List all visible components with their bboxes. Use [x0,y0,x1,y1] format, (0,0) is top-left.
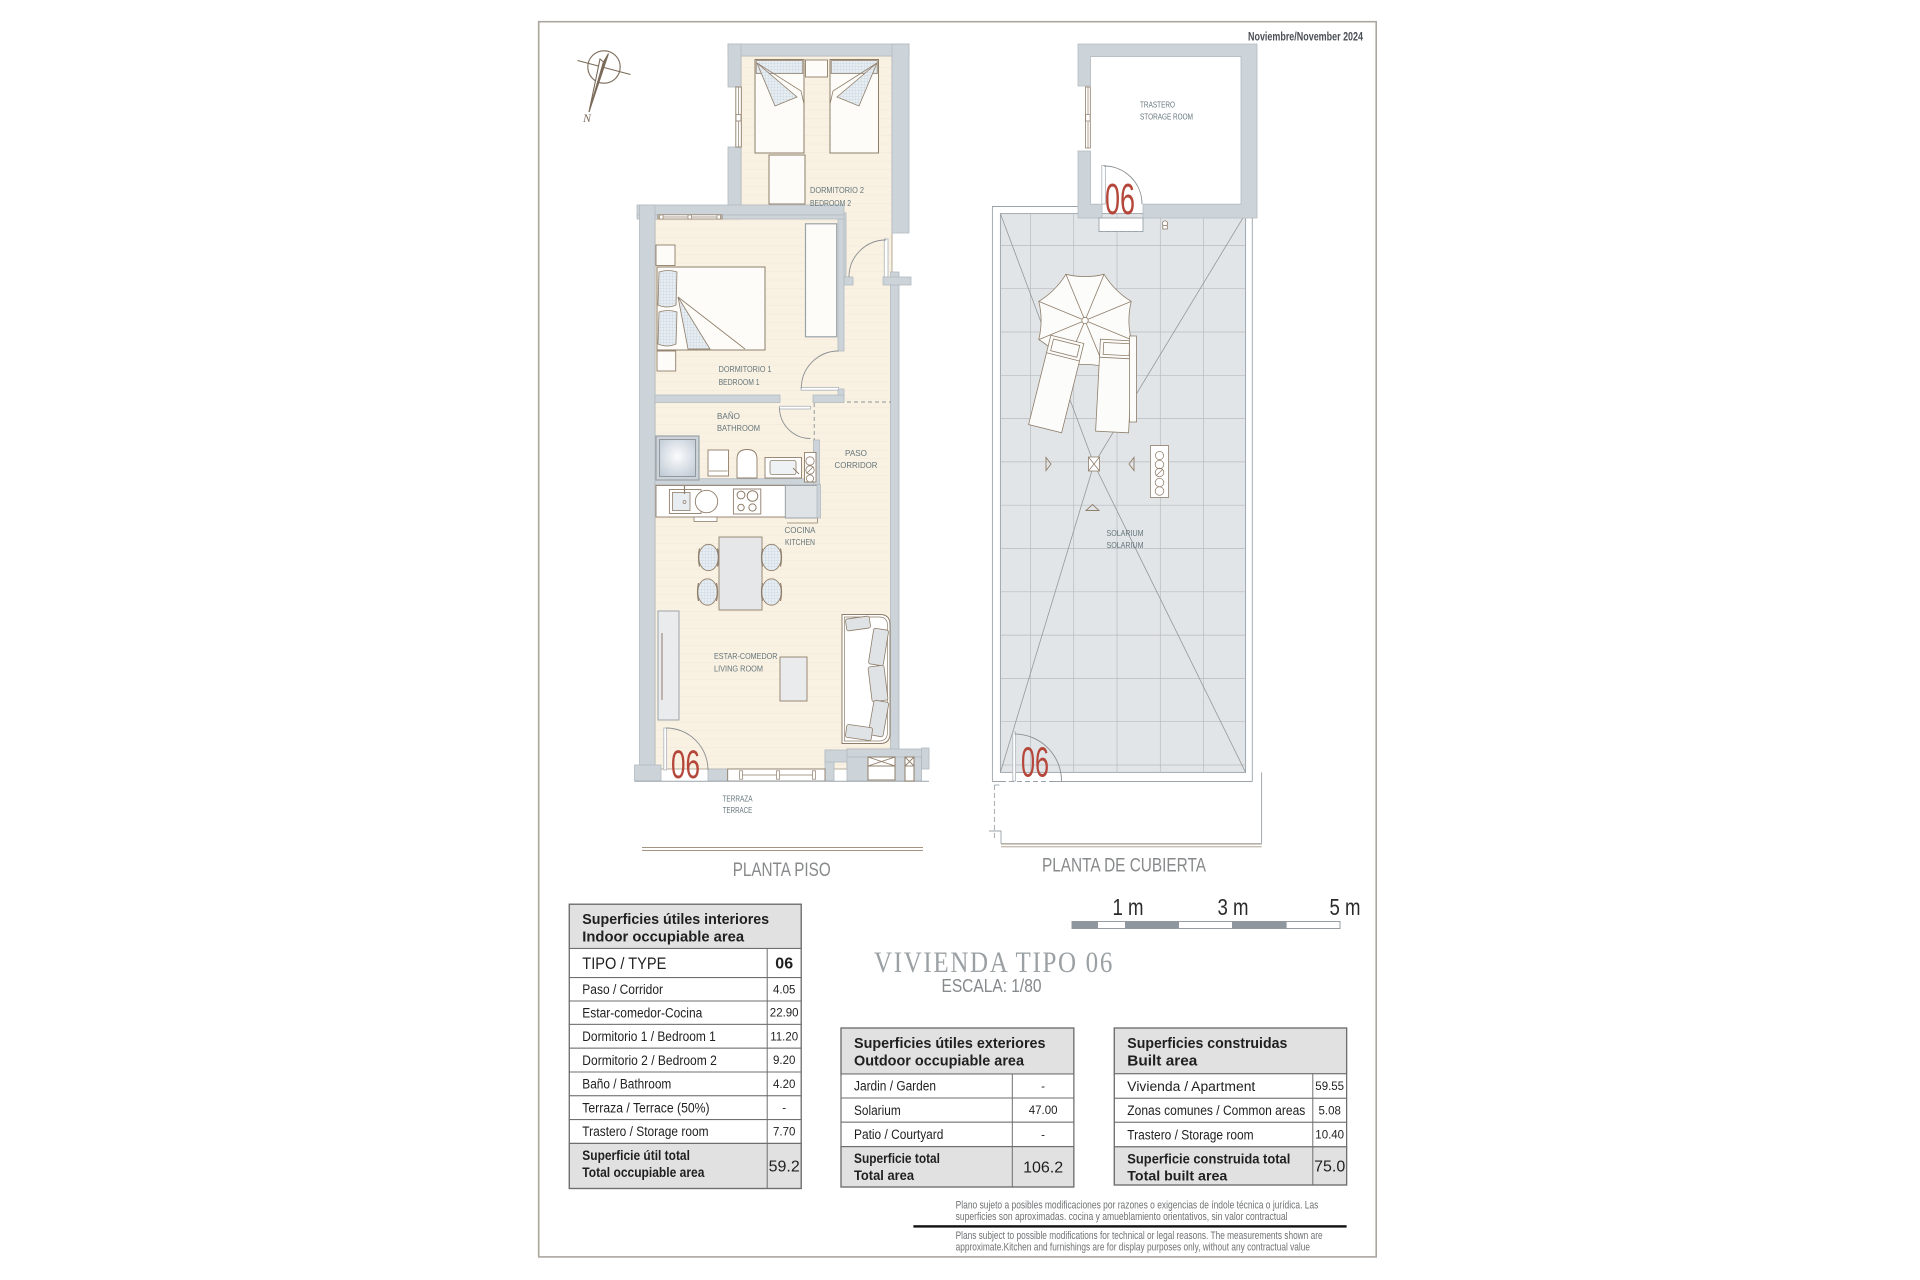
svg-text:9.20: 9.20 [773,1055,795,1067]
svg-text:Total built area: Total built area [1127,1168,1228,1183]
svg-text:PLANTA PISO: PLANTA PISO [733,859,831,881]
svg-text:Superficie útil total: Superficie útil total [582,1148,690,1163]
svg-text:Dormitorio 2 / Bedroom 2: Dormitorio 2 / Bedroom 2 [582,1053,717,1068]
svg-text:Zonas comunes / Common areas: Zonas comunes / Common areas [1127,1103,1305,1118]
svg-text:LIVING ROOM: LIVING ROOM [714,664,763,674]
svg-text:N: N [582,111,592,125]
svg-text:75.0: 75.0 [1314,1159,1345,1176]
svg-text:-: - [782,1103,786,1115]
svg-text:5 m: 5 m [1330,894,1361,920]
svg-text:PASO: PASO [845,448,867,458]
svg-text:Superficies construidas: Superficies construidas [1127,1035,1287,1052]
svg-text:-: - [1041,1081,1045,1093]
svg-text:BAÑO: BAÑO [717,411,740,421]
svg-text:7.70: 7.70 [773,1127,795,1139]
svg-text:47.00: 47.00 [1029,1105,1058,1117]
svg-text:Terraza / Terrace (50%): Terraza / Terrace (50%) [582,1100,709,1115]
svg-text:11.20: 11.20 [770,1031,798,1043]
svg-text:10.40: 10.40 [1315,1130,1344,1142]
svg-text:STORAGE ROOM: STORAGE ROOM [1140,112,1193,122]
svg-text:Patio / Courtyard: Patio / Courtyard [854,1127,943,1142]
svg-text:Vivienda / Apartment: Vivienda / Apartment [1127,1079,1255,1094]
svg-text:SOLARIUM: SOLARIUM [1107,528,1144,538]
svg-text:Plano sujeto a posibles modifi: Plano sujeto a posibles modificaciones p… [956,1200,1319,1212]
svg-text:BEDROOM 2: BEDROOM 2 [810,198,851,208]
svg-text:59.55: 59.55 [1315,1081,1344,1093]
svg-text:3 m: 3 m [1218,894,1249,920]
svg-text:ESTAR-COMEDOR: ESTAR-COMEDOR [714,651,778,661]
svg-text:BATHROOM: BATHROOM [717,423,760,433]
svg-text:TERRAZA: TERRAZA [723,794,753,804]
svg-text:59.2: 59.2 [769,1159,800,1176]
svg-text:06: 06 [671,743,700,787]
svg-text:Solarium: Solarium [854,1103,901,1118]
svg-text:Noviembre/November 2024: Noviembre/November 2024 [1248,32,1363,44]
svg-text:06: 06 [775,956,793,973]
svg-text:KITCHEN: KITCHEN [785,537,815,547]
svg-text:TERRACE: TERRACE [723,805,753,815]
svg-text:Estar-comedor-Cocina: Estar-comedor-Cocina [582,1005,702,1020]
svg-text:06: 06 [1021,739,1049,787]
svg-text:06: 06 [1105,175,1135,224]
svg-text:5.08: 5.08 [1319,1105,1341,1117]
svg-text:ESCALA: 1/80: ESCALA: 1/80 [942,976,1042,996]
svg-text:COCINA: COCINA [785,525,816,535]
svg-text:106.2: 106.2 [1023,1159,1063,1176]
svg-text:Total occupiable area: Total occupiable area [582,1165,705,1180]
svg-text:-: - [1041,1129,1045,1141]
svg-text:1 m: 1 m [1113,894,1144,920]
svg-text:Dormitorio 1 / Bedroom 1: Dormitorio 1 / Bedroom 1 [582,1029,716,1044]
svg-text:approximate.Kitchen and furnis: approximate.Kitchen and furnishings are … [956,1242,1310,1254]
svg-text:Outdoor occupiable area: Outdoor occupiable area [854,1053,1025,1070]
svg-text:SOLARIUM: SOLARIUM [1107,540,1144,550]
svg-text:Trastero / Storage room: Trastero / Storage room [582,1124,708,1139]
svg-text:Paso / Corridor: Paso / Corridor [582,982,663,997]
svg-text:Jardin / Garden: Jardin / Garden [854,1079,936,1094]
svg-text:CORRIDOR: CORRIDOR [835,460,878,470]
svg-text:VIVIENDA TIPO 06: VIVIENDA TIPO 06 [874,946,1114,979]
svg-text:Superficie total: Superficie total [854,1151,940,1166]
svg-text:TIPO / TYPE: TIPO / TYPE [582,955,666,973]
svg-text:Built area: Built area [1127,1053,1198,1070]
svg-text:4.05: 4.05 [773,984,795,996]
svg-text:Indoor occupiable area: Indoor occupiable area [582,929,744,946]
svg-text:4.20: 4.20 [773,1079,795,1091]
svg-text:Trastero / Storage room: Trastero / Storage room [1127,1127,1253,1142]
svg-text:PLANTA DE CUBIERTA: PLANTA DE CUBIERTA [1042,855,1206,877]
svg-text:DORMITORIO 2: DORMITORIO 2 [810,185,864,195]
svg-text:TRASTERO: TRASTERO [1140,100,1175,110]
svg-text:22.90: 22.90 [770,1008,799,1020]
svg-text:Superficie construida total: Superficie construida total [1127,1151,1290,1166]
svg-text:Plans subject to possible modi: Plans subject to possible modifications … [956,1230,1323,1242]
svg-text:Baño / Bathroom: Baño / Bathroom [582,1077,671,1092]
svg-text:BEDROOM 1: BEDROOM 1 [719,377,760,387]
svg-text:Superficies útiles interiores: Superficies útiles interiores [582,911,769,928]
svg-text:Superficies útiles exteriores: Superficies útiles exteriores [854,1035,1046,1052]
svg-text:DORMITORIO 1: DORMITORIO 1 [719,364,772,374]
svg-text:superficies son aproximadas. c: superficies son aproximadas. cocina y am… [956,1211,1288,1223]
svg-text:Total area: Total area [854,1168,914,1183]
